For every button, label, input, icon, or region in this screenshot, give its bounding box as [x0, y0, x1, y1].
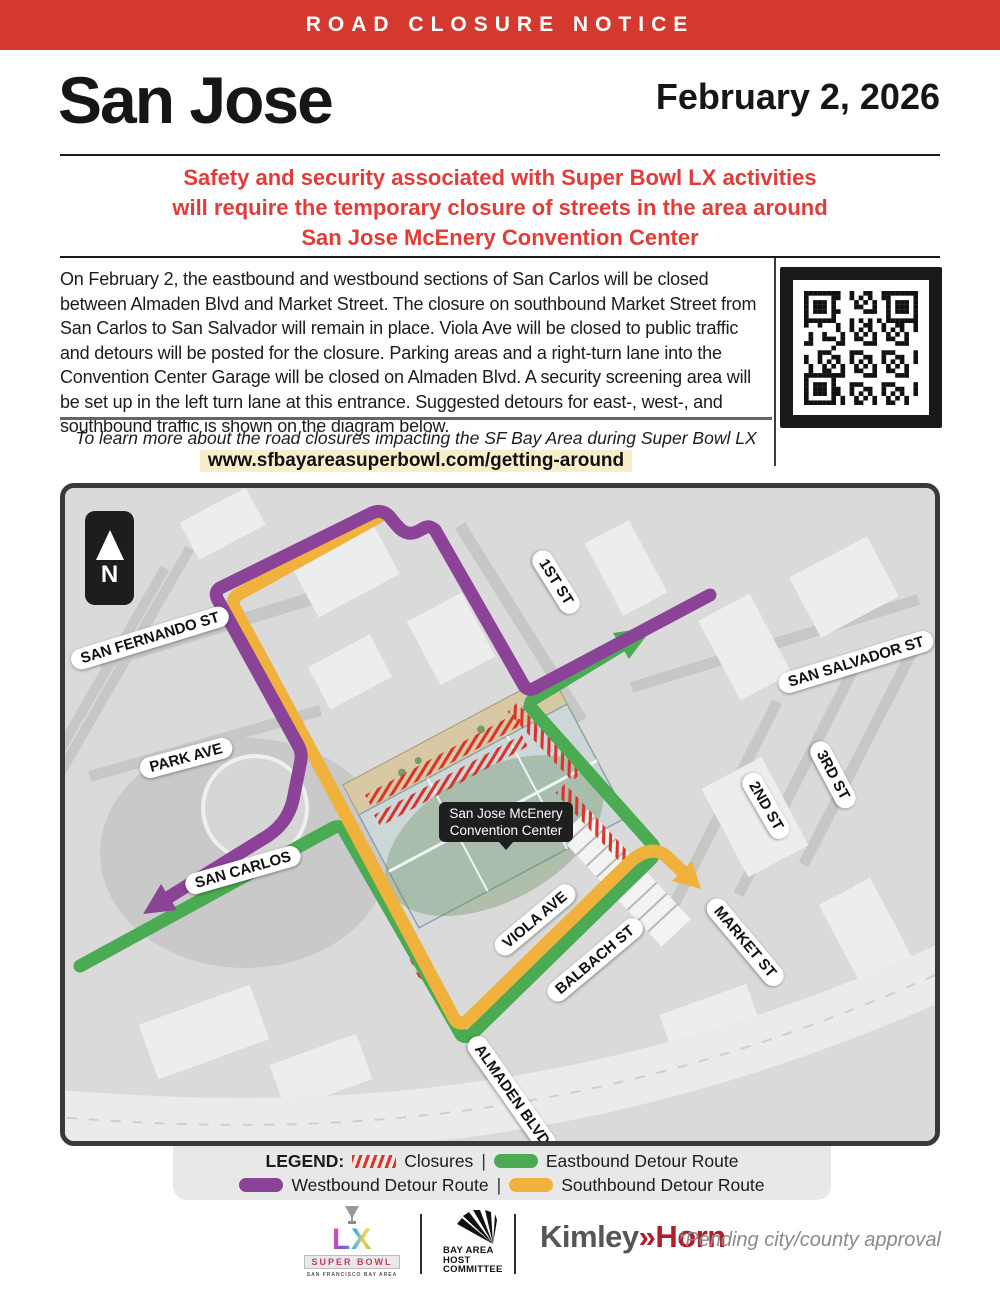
legend-separator: | [481, 1149, 486, 1173]
detour-map: SAN FERNANDO ST PARK AVE SAN CARLOS 1ST … [60, 483, 940, 1146]
callout-line1: San Jose McEnery [443, 805, 569, 822]
city-title: San Jose [58, 62, 332, 138]
road-closure-notice-page: ROAD CLOSURE NOTICE San Jose February 2,… [0, 0, 1000, 1294]
callout-line2: Convention Center [443, 822, 569, 839]
notice-banner: ROAD CLOSURE NOTICE [0, 0, 1000, 50]
host-committee-wordmark: BAY AREA HOST COMMITTEE [443, 1246, 503, 1275]
southbound-swatch-icon [509, 1178, 553, 1192]
legend-row-1: LEGEND: Closures | Eastbound Detour Rout… [173, 1149, 831, 1173]
notice-date: February 2, 2026 [656, 76, 940, 118]
legend-separator: | [497, 1173, 502, 1197]
divider-line [60, 154, 940, 156]
closure-description: On February 2, the eastbound and westbou… [60, 267, 766, 439]
banner-title: ROAD CLOSURE NOTICE [306, 13, 695, 37]
footer-divider [420, 1214, 422, 1274]
legend-title: LEGEND: [266, 1149, 345, 1173]
pending-approval-note: *Pending city/county approval [678, 1229, 942, 1252]
closures-swatch-icon [352, 1155, 396, 1168]
superbowl-wordmark: SUPER BOWL [304, 1255, 399, 1269]
divider-line [60, 256, 940, 258]
legend-closures-label: Closures [404, 1149, 473, 1173]
subtitle-line: Safety and security associated with Supe… [0, 163, 1000, 193]
subtitle-line: will require the temporary closure of st… [0, 193, 1000, 223]
subtitle-line: San Jose McEnery Convention Center [0, 223, 1000, 253]
north-label: N [101, 564, 118, 586]
kimley-wordmark: Kimley [540, 1219, 639, 1254]
westbound-swatch-icon [239, 1178, 283, 1192]
divider-line [60, 417, 772, 420]
legend-southbound-label: Southbound Detour Route [561, 1173, 764, 1197]
host-committee-wing-icon [455, 1210, 497, 1246]
footer-divider [514, 1214, 516, 1274]
qr-code-modules [804, 291, 918, 405]
convention-center-callout: San Jose McEnery Convention Center [439, 802, 573, 842]
map-legend: LEGEND: Closures | Eastbound Detour Rout… [173, 1146, 831, 1200]
vertical-divider [774, 258, 776, 466]
north-arrow-icon [96, 530, 124, 560]
qr-code [780, 267, 942, 428]
legend-eastbound-label: Eastbound Detour Route [546, 1149, 739, 1173]
notice-subtitle: Safety and security associated with Supe… [0, 163, 1000, 253]
getting-around-link[interactable]: www.sfbayareasuperbowl.com/getting-aroun… [200, 450, 632, 472]
legend-westbound-label: Westbound Detour Route [291, 1173, 488, 1197]
kimley-arrows-icon: » [639, 1219, 656, 1254]
superbowl-tagline: SAN FRANCISCO BAY AREA [307, 1272, 397, 1278]
eastbound-swatch-icon [494, 1154, 538, 1168]
superbowl-lx-mark: LX [332, 1226, 372, 1254]
legend-row-2: Westbound Detour Route | Southbound Deto… [173, 1173, 831, 1197]
url-container: www.sfbayareasuperbowl.com/getting-aroun… [60, 450, 772, 472]
super-bowl-lx-logo: LX SUPER BOWL SAN FRANCISCO BAY AREA [300, 1206, 404, 1278]
north-indicator: N [85, 511, 134, 605]
bahc-line3: COMMITTEE [443, 1265, 503, 1275]
host-committee-logo: BAY AREA HOST COMMITTEE [437, 1210, 515, 1275]
